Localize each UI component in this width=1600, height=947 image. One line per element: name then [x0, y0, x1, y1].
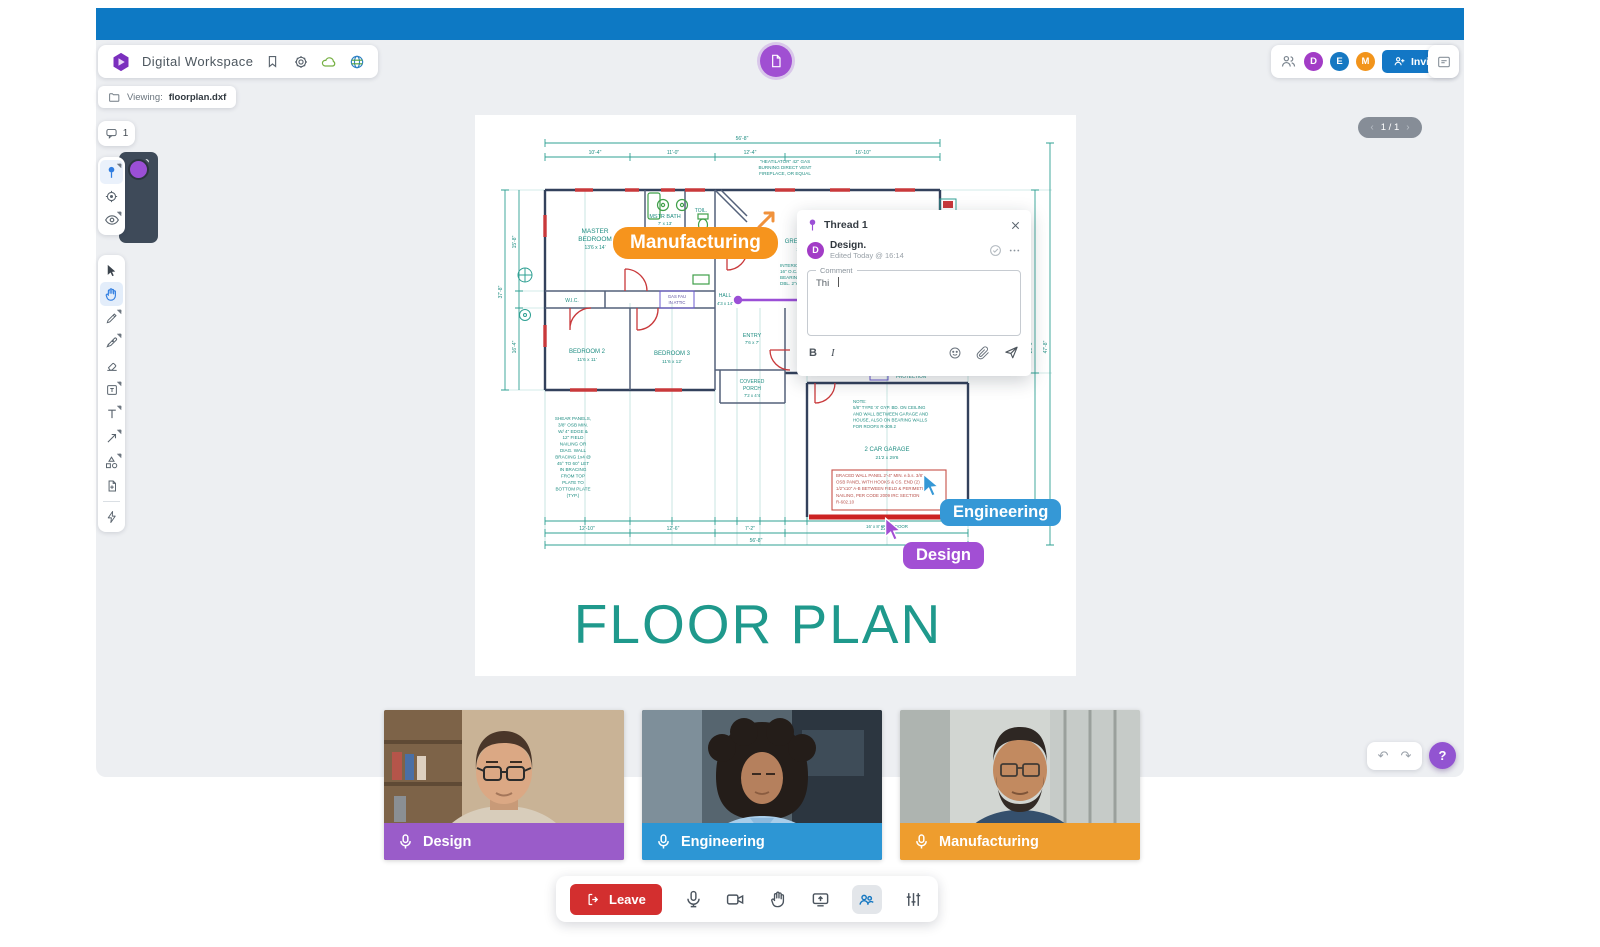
- attach-icon[interactable]: [976, 346, 990, 360]
- dim-top-4: 16'-10": [855, 150, 871, 156]
- design-cursor-label: Design: [903, 542, 984, 569]
- dim-top-1: 10'-4": [589, 150, 602, 156]
- thread-title: Thread 1: [824, 219, 1004, 231]
- leave-call-button[interactable]: Leave: [570, 884, 662, 915]
- room-bath: MSTR BATH: [649, 214, 680, 220]
- room-wic: W.I.C.: [565, 298, 579, 304]
- page-indicator: 1 / 1: [1381, 122, 1400, 133]
- participants-button[interactable]: [852, 885, 881, 914]
- room-porch-dims: 7'2 x 4'4: [744, 393, 761, 398]
- manufacturing-namebar: Manufacturing: [900, 823, 1140, 860]
- gasfau-label-1: GAS FAU: [668, 294, 686, 299]
- prev-page-icon[interactable]: ‹: [1370, 122, 1373, 133]
- avatar-design[interactable]: D: [1304, 52, 1323, 71]
- dim-bottom-total: 56'-8": [750, 538, 763, 544]
- app-title: Digital Workspace: [142, 54, 253, 69]
- document-icon: [768, 53, 784, 69]
- room-bed3: BEDROOM 3: [654, 351, 691, 357]
- share-screen-icon: [810, 890, 831, 909]
- history-controls: ↶ ↷: [1367, 742, 1422, 770]
- dim-top-2: 11'-0": [667, 150, 680, 156]
- video-tile-manufacturing[interactable]: Manufacturing: [900, 710, 1140, 860]
- thread-edited-timestamp: Edited Today @ 16:14: [830, 251, 904, 260]
- folder-icon: [108, 91, 121, 104]
- viewing-label: Viewing:: [127, 92, 163, 103]
- leave-label: Leave: [609, 892, 646, 907]
- comment-panel-icon: [1436, 54, 1452, 70]
- comment-input[interactable]: Comment Thi: [807, 270, 1021, 336]
- floorplan-drawing: 56'-8" 10'-4" 11'-0" 12'-4" 16'-10" 12'-…: [475, 115, 1076, 676]
- mic-icon: [915, 834, 928, 850]
- video-tile-engineering[interactable]: Engineering: [642, 710, 882, 860]
- room-garage-dims: 21'2 x 29'6: [876, 455, 899, 461]
- thread-author-row: D Design. Edited Today @ 16:14: [797, 238, 1031, 266]
- comment-count: 1: [123, 128, 129, 139]
- emoji-icon[interactable]: [948, 346, 962, 360]
- app-logo-icon: [111, 51, 131, 73]
- microphone-button[interactable]: [683, 887, 704, 911]
- design-cursor-icon: [884, 517, 903, 542]
- arrow-tool[interactable]: [100, 426, 123, 450]
- thread-header: Thread 1: [797, 210, 1031, 238]
- room-garage: 2 CAR GARAGE: [864, 447, 909, 453]
- raise-hand-icon: [769, 890, 788, 909]
- participant-name: Engineering: [681, 834, 765, 850]
- dim-bottom-3: 7'-2": [745, 526, 755, 532]
- app-header: Digital Workspace: [98, 45, 378, 78]
- dim-top-3: 12'-4": [744, 150, 757, 156]
- pin-toolbar: [98, 157, 125, 235]
- settings-sliders-icon: [904, 890, 923, 909]
- dim-bottom-1: 12'-10": [579, 526, 595, 532]
- video-tile-design[interactable]: Design: [384, 710, 624, 860]
- room-toilet: TOIL.: [695, 208, 707, 214]
- eraser-tool[interactable]: [100, 354, 123, 378]
- pan-hand-tool[interactable]: [100, 282, 123, 306]
- room-porch-1: COVERED: [740, 379, 765, 385]
- select-tool[interactable]: [100, 258, 123, 282]
- page-navigator[interactable]: ‹ 1 / 1 ›: [1358, 117, 1422, 138]
- avatar-engineering[interactable]: E: [1330, 52, 1349, 71]
- room-bed2-dims: 11'6 x 11': [577, 357, 597, 363]
- dim-left-total: 37'-8": [498, 285, 504, 298]
- participants-icon: [856, 890, 877, 909]
- quick-actions-tool[interactable]: [100, 505, 123, 529]
- call-control-bar: Leave: [556, 876, 938, 922]
- send-icon[interactable]: [1004, 345, 1019, 360]
- undo-button[interactable]: ↶: [1378, 748, 1389, 764]
- design-namebar: Design: [384, 823, 624, 860]
- shapes-tool[interactable]: [100, 450, 123, 474]
- dim-bottom-2: 12'-6": [667, 526, 680, 532]
- person-add-icon: [1393, 55, 1406, 68]
- microphone-icon: [684, 890, 703, 909]
- manufacturing-cursor-icon: [756, 208, 778, 230]
- toolbar-divider: [103, 501, 120, 502]
- room-entry: ENTRY: [743, 333, 762, 339]
- presenting-file-button[interactable]: [760, 45, 792, 77]
- camera-icon: [725, 890, 746, 909]
- dim-left-2: 16'-4": [512, 340, 518, 353]
- comment-bubble-icon: [105, 127, 118, 140]
- bookmark-icon[interactable]: [264, 53, 281, 70]
- room-entry-dims: 7'6 x 7': [745, 340, 759, 345]
- resolve-check-icon[interactable]: [989, 244, 1002, 257]
- comment-pin-tool[interactable]: [100, 160, 123, 184]
- viewing-filename: floorplan.dxf: [169, 92, 227, 103]
- note-tool[interactable]: [100, 378, 123, 402]
- room-hall: HALL: [719, 293, 732, 299]
- mic-icon: [399, 834, 412, 850]
- room-porch-2: PORCH: [743, 386, 761, 392]
- close-icon[interactable]: [1010, 220, 1021, 231]
- comment-panel-button[interactable]: [1428, 45, 1459, 78]
- next-page-icon[interactable]: ›: [1406, 122, 1409, 133]
- room-master-1: MASTER: [581, 228, 608, 235]
- comment-count-button[interactable]: 1: [98, 121, 135, 146]
- engineering-cursor-label: Engineering: [940, 499, 1061, 526]
- room-hall-dims: 4'3 x 14': [717, 301, 733, 306]
- add-file-tool[interactable]: [100, 474, 123, 498]
- top-accent-bar: [96, 8, 1464, 40]
- braced-wall-note: BRACED WALL PANEL 2'-4" MIN. e.b.s. 3/8"…: [836, 473, 928, 504]
- dim-top-total: 56'-8": [736, 136, 749, 142]
- room-master-2: BEDROOM: [578, 236, 612, 243]
- comment-format-toolbar: B I: [797, 336, 1031, 369]
- thread-author-avatar: D: [807, 242, 824, 259]
- cloud-sync-icon[interactable]: [320, 53, 337, 70]
- italic-button[interactable]: I: [831, 347, 835, 359]
- thread-pin-icon: [807, 218, 818, 232]
- manufacturing-cursor-label: Manufacturing: [613, 227, 778, 259]
- engineering-cursor-icon: [922, 473, 941, 498]
- text-caret: [838, 277, 839, 287]
- dim-right-total: 47'-8": [1043, 340, 1049, 353]
- floorplan-document[interactable]: 56'-8" 10'-4" 11'-0" 12'-4" 16'-10" 12'-…: [475, 115, 1076, 676]
- settings-sliders-button[interactable]: [903, 887, 924, 911]
- globe-icon[interactable]: [348, 53, 365, 70]
- gasfau-label-2: IN ATTIC: [669, 300, 686, 305]
- participant-name: Manufacturing: [939, 834, 1039, 850]
- fireplace-note: "HEATILATOR" 42" GASBURNING DIRECT VENTF…: [758, 159, 811, 176]
- drawing-toolbar: [98, 255, 125, 532]
- shear-panels-note: SHEAR PANELS,3/8" OSB MIN.W/ 4" EDGE &12…: [555, 416, 591, 498]
- thread-author-name: Design.: [830, 240, 904, 251]
- raise-hand-button[interactable]: [768, 887, 789, 911]
- help-button[interactable]: ?: [1429, 742, 1456, 769]
- floorplan-title: FLOOR PLAN: [574, 593, 942, 655]
- room-bed3-dims: 11'6 x 12': [662, 359, 682, 365]
- dim-left-1: 15'-8": [512, 235, 518, 248]
- participant-name: Design: [423, 834, 471, 850]
- garage-note: NOTE:5/8" TYPE 'X' GYP. BD. ON CEILINGAN…: [853, 399, 928, 429]
- viewing-file-chip: Viewing: floorplan.dxf: [98, 86, 236, 108]
- mic-icon: [657, 834, 670, 850]
- redo-button[interactable]: ↷: [1401, 748, 1412, 764]
- visibility-eye-tool[interactable]: [100, 208, 123, 232]
- add-target-tool[interactable]: [100, 184, 123, 208]
- participants-group-icon[interactable]: [1280, 53, 1297, 70]
- room-bath-dims: 7' x 13': [658, 221, 672, 226]
- camera-button[interactable]: [725, 887, 746, 911]
- room-bed2: BEDROOM 2: [569, 349, 606, 355]
- avatar-manufacturing[interactable]: M: [1356, 52, 1375, 71]
- comment-thread-popup: Thread 1 D Design. Edited Today @ 16:14 …: [797, 210, 1031, 376]
- share-screen-button[interactable]: [810, 887, 831, 911]
- more-options-icon[interactable]: [1008, 244, 1021, 257]
- engineering-namebar: Engineering: [642, 823, 882, 860]
- bold-button[interactable]: B: [809, 347, 817, 359]
- leave-icon: [586, 892, 601, 907]
- comment-field-label: Comment: [816, 266, 857, 275]
- pen-tool[interactable]: [100, 330, 123, 354]
- pencil-tool[interactable]: [100, 306, 123, 330]
- pin-color-swatch[interactable]: [128, 159, 149, 180]
- settings-gear-icon[interactable]: [292, 53, 309, 70]
- room-master-dims: 13'6 x 14': [584, 245, 605, 251]
- text-tool[interactable]: [100, 402, 123, 426]
